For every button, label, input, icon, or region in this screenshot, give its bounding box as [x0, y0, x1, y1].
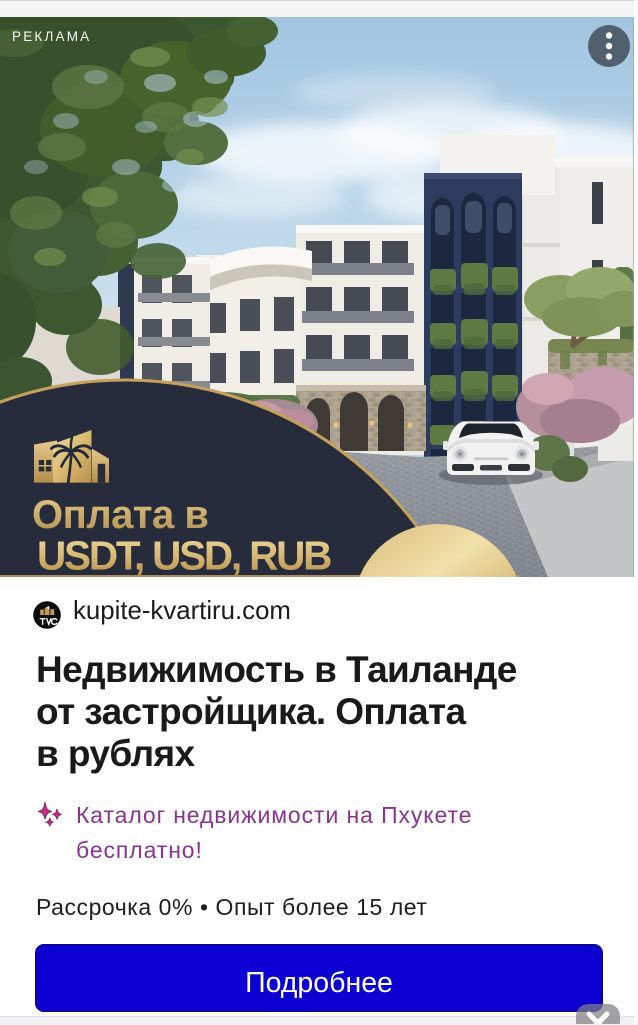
svg-text:Оплата в: Оплата в	[32, 493, 208, 537]
svg-text:USDT, USD, RUB: USDT, USD, RUB	[37, 533, 331, 578]
svg-text:РЕКЛАМА: РЕКЛАМА	[12, 29, 91, 44]
